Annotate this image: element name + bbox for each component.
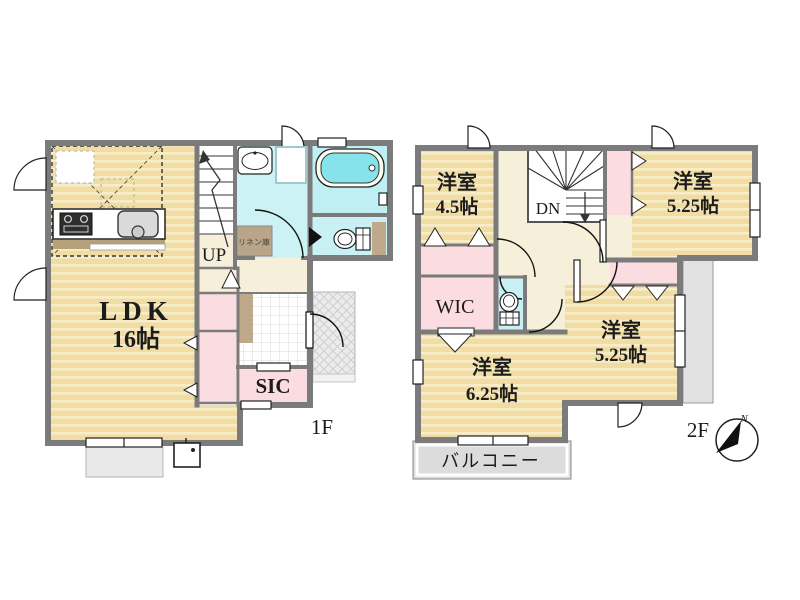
floor-plan-page: N LDK 16帖 UP リネン庫 SIC 1F 洋室 4.5帖 DN 洋室 5…: [0, 0, 800, 600]
water-heater-icon: [174, 443, 200, 467]
porch: [313, 292, 355, 374]
floor-plan-drawing: N LDK 16帖 UP リネン庫 SIC 1F 洋室 4.5帖 DN 洋室 5…: [0, 0, 800, 600]
casement-window-icon: [282, 126, 304, 148]
casement-window-icon: [652, 126, 674, 148]
room-525a-size: 5.25帖: [667, 194, 719, 217]
washing-machine-space: [276, 147, 306, 183]
room-625-label: 洋室: [472, 355, 512, 379]
stairs-up-label: UP: [202, 245, 226, 266]
window: [241, 401, 271, 409]
closet-2f-c: [610, 262, 677, 285]
ldk-floor: [48, 143, 197, 443]
roof-area: [683, 260, 713, 403]
terrace: [86, 447, 163, 477]
entrance-step: [238, 293, 253, 343]
room-45-label: 洋室: [437, 170, 477, 194]
casement-window-icon: [468, 126, 490, 148]
casement-window-icon: [618, 403, 642, 427]
window: [257, 363, 290, 371]
ldk-label: LDK: [99, 296, 173, 326]
wic-label: WIC: [436, 296, 475, 318]
room-625-size: 6.25帖: [466, 382, 518, 405]
floor1-label: 1F: [311, 415, 333, 439]
front-door-leaf: [306, 312, 313, 348]
door-leaf: [574, 260, 580, 302]
porch-step: [313, 374, 355, 382]
toilet-1f-icon: [334, 230, 356, 249]
balcony-label: バルコニー: [441, 451, 541, 471]
casement-window-icon: [14, 268, 46, 300]
linen-closet-label: リネン庫: [238, 237, 270, 247]
room-525a-label: 洋室: [673, 169, 713, 193]
shower-icon: [379, 193, 387, 205]
compass: N: [716, 413, 758, 461]
ldk-size-label: 16帖: [112, 326, 160, 353]
window: [413, 186, 423, 214]
hall-2f-b: [605, 215, 632, 262]
room-525b-floor: [565, 285, 677, 403]
hall-2f-c: [565, 260, 610, 285]
fridge-space: [56, 151, 94, 183]
room-525b-size: 5.25帖: [595, 343, 647, 366]
compass-north-label: N: [739, 413, 748, 425]
ldk-floor-ext: [197, 405, 240, 443]
casement-window-icon: [14, 158, 46, 190]
floor2-label: 2F: [687, 418, 709, 442]
closet-1f-a: [197, 293, 238, 330]
toilet-side-shelf: [372, 222, 386, 256]
sic-label: SIC: [255, 374, 290, 398]
hall-1f-floor: [235, 258, 310, 295]
room-525b-label: 洋室: [601, 318, 641, 342]
stairs-dn-label: DN: [536, 199, 561, 218]
closet-1f-b: [197, 332, 238, 403]
window: [413, 360, 423, 384]
room-45-size: 4.5帖: [436, 195, 479, 218]
window: [318, 138, 346, 147]
floor1-plan: [14, 126, 390, 477]
closet-2f-a: [418, 245, 495, 276]
closet-2f-b: [607, 150, 632, 215]
